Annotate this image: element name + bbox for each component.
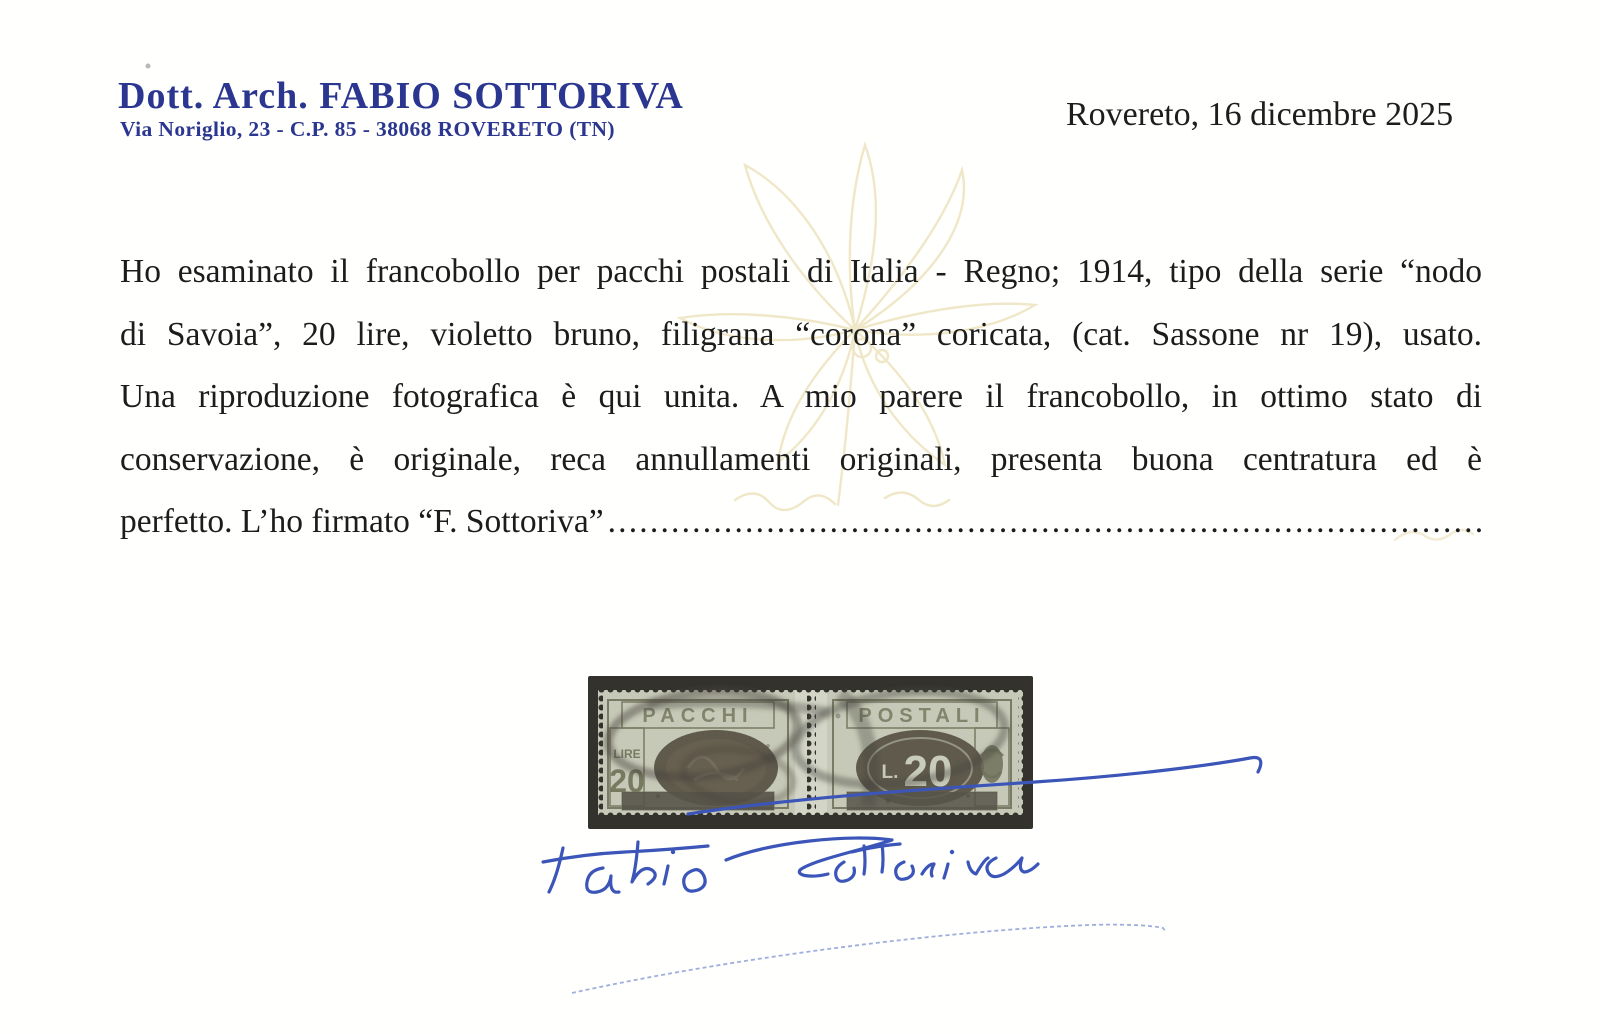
signature: [0, 0, 1600, 1034]
signature-strokes: [0, 0, 1600, 1034]
signature-underline-arc: [572, 925, 1166, 993]
certificate-page: Dott. Arch. FABIO SOTTORIVA Via Noriglio…: [0, 0, 1600, 1034]
signature-flourish: [688, 758, 1261, 814]
